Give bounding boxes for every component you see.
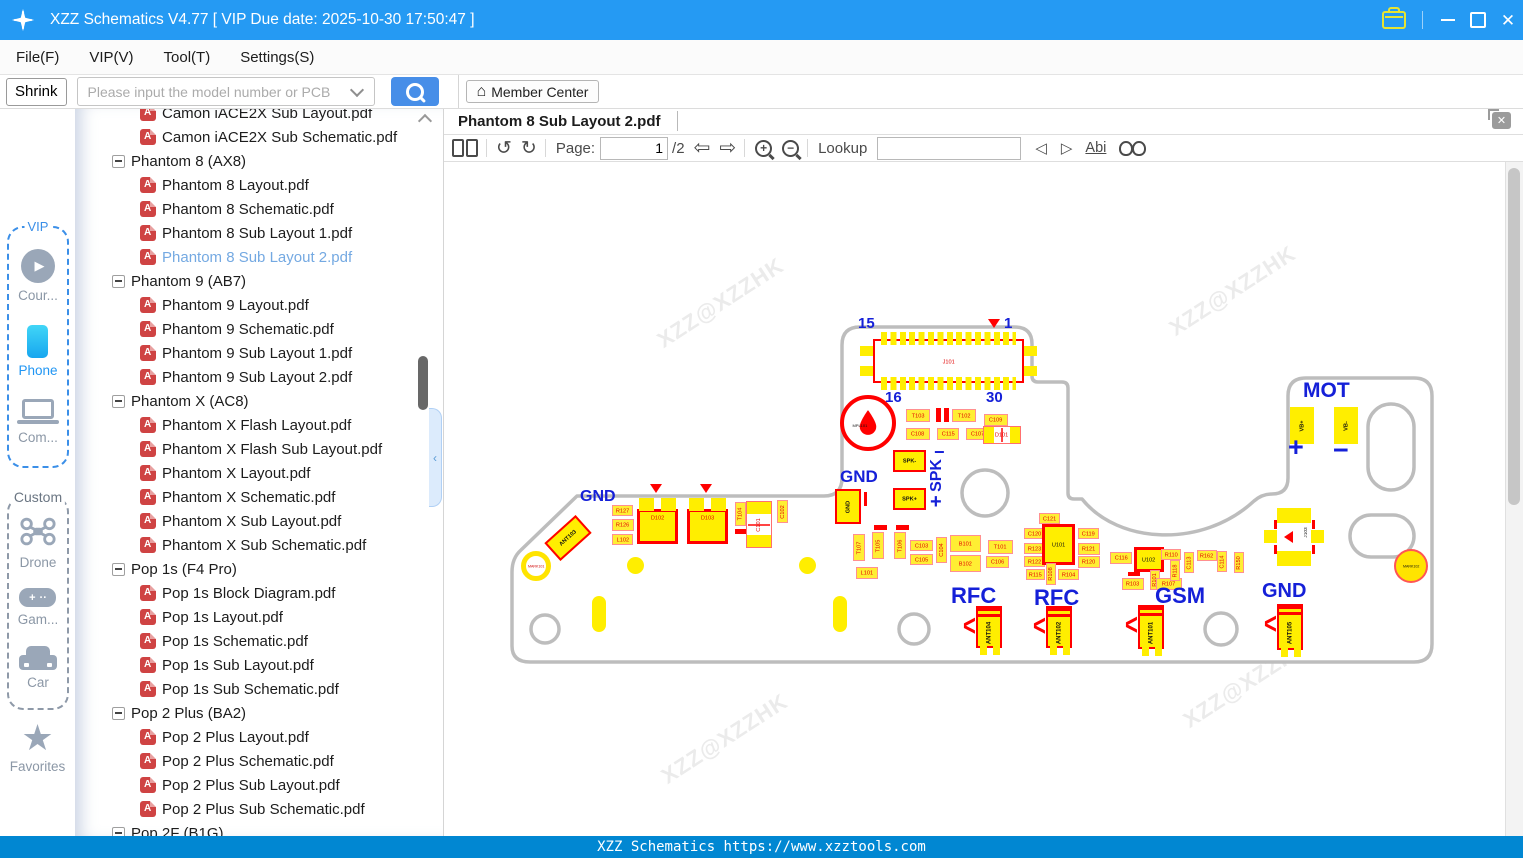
pdf-toolbar: ↺ ↻ Page: /2 ⇦ ⇨ + − Lookup ◁ ▷ Abi <box>444 135 1523 162</box>
pcb-component-ant104: <ANT104 <box>976 606 1002 648</box>
collapse-panel-handle[interactable]: ‹ <box>429 408 442 507</box>
zoom-out-icon[interactable]: − <box>782 140 799 157</box>
tree-item[interactable]: APhantom X Sub Layout.pdf <box>75 510 427 532</box>
tree-item[interactable]: APhantom 9 Layout.pdf <box>75 294 427 316</box>
pdf-icon: A <box>140 657 156 673</box>
tree-item[interactable]: APop 2 Plus Sub Schematic.pdf <box>75 798 427 820</box>
pcb-pill-mark <box>833 596 847 632</box>
tree-scrollbar-thumb[interactable] <box>418 356 428 410</box>
pcb-redbar-mark <box>874 525 887 530</box>
pcb-net-label: RFC <box>1034 587 1079 609</box>
pcb-component-spk-: SPK- <box>893 450 926 472</box>
star-icon: ★ <box>21 720 53 756</box>
lookup-label: Lookup <box>818 140 867 157</box>
pcb-component-b102: B102 <box>950 555 981 572</box>
pcb-component-l102: L102 <box>612 534 633 545</box>
pcb-component-r115: R115 <box>1026 569 1045 580</box>
pcb-component-r150: R150 <box>1234 552 1244 573</box>
diode-triangle-icon <box>1284 531 1293 543</box>
next-page-icon[interactable]: ⇨ <box>719 138 736 158</box>
briefcase-icon[interactable] <box>1382 11 1406 29</box>
tree-item[interactable]: APhantom 9 Sub Layout 1.pdf <box>75 342 427 364</box>
pdf-icon: A <box>140 633 156 649</box>
pcb-component-gnd: GND <box>835 489 861 524</box>
tree-item[interactable]: APop 2 Plus Layout.pdf <box>75 726 427 748</box>
pcb-component-u102: U102 <box>1134 547 1164 572</box>
pdf-icon: A <box>140 537 156 553</box>
pcb-component-c102: C102 <box>777 500 788 523</box>
pcb-component-r118: R118 <box>1170 560 1180 581</box>
pcb-component-t105: T105 <box>872 532 884 559</box>
pcb-component-t107: T107 <box>853 534 865 561</box>
pcb-component-t104: T104 <box>735 502 746 526</box>
tree-item[interactable]: APhantom 9 Schematic.pdf <box>75 318 427 340</box>
pdf-icon: A <box>140 777 156 793</box>
pdf-icon: A <box>140 417 156 433</box>
pcb-component-t101: T101 <box>988 540 1013 554</box>
pcb-component-b101: B101 <box>950 535 981 552</box>
drone-icon <box>19 516 57 550</box>
collapse-icon[interactable] <box>112 563 125 576</box>
pcb-component-r108: R108 <box>1046 563 1056 585</box>
pcb-net-label: 30 <box>986 390 1003 405</box>
pcb-component-ant101: <ANT101 <box>1138 605 1164 649</box>
titlebar-divider <box>1422 11 1423 29</box>
tree-item[interactable]: APhantom X Flash Sub Layout.pdf <box>75 438 427 460</box>
tree-item[interactable]: APop 1s Sub Layout.pdf <box>75 654 427 676</box>
menu-tool[interactable]: Tool(T) <box>150 49 225 66</box>
pcb-component-l101: L101 <box>856 567 878 579</box>
chevron-down-icon[interactable] <box>349 82 363 96</box>
tab-divider <box>677 111 678 131</box>
pdf-icon: A <box>140 321 156 337</box>
tree-item[interactable]: APop 1s Schematic.pdf <box>75 630 427 652</box>
pcb-diode-j103: J103 <box>1264 506 1324 568</box>
spring-contact-icon: < <box>963 611 976 641</box>
page-label: Page: <box>556 140 595 157</box>
pcb-component-r104: R104 <box>1058 569 1079 580</box>
sidebar-item-phone[interactable]: Phone <box>18 325 57 378</box>
laptop-icon <box>22 399 54 419</box>
tree-item[interactable]: APop 1s Sub Schematic.pdf <box>75 678 427 700</box>
pdf-icon: A <box>140 513 156 529</box>
tab-phantom-8-sub-layout-2[interactable]: Phantom 8 Sub Layout 2.pdf <box>458 113 661 130</box>
pdf-icon: A <box>140 345 156 361</box>
car-icon <box>19 655 57 670</box>
search-row: Shrink ⌂ Member Center <box>0 75 1523 109</box>
pcb-component-c114: C114 <box>1217 551 1227 572</box>
collapse-icon[interactable] <box>112 155 125 168</box>
vip-group-label: VIP <box>25 219 52 235</box>
tree-item[interactable]: Pop 2 Plus (BA2) <box>75 702 427 724</box>
pcb-component-r120: R120 <box>1078 556 1100 568</box>
binoculars-icon[interactable] <box>1119 141 1146 156</box>
rotate-right-icon[interactable]: ↻ <box>521 139 537 158</box>
pcb-net-label: 15 <box>858 316 875 331</box>
pdf-icon: A <box>140 108 156 121</box>
pcb-component-c115: C115 <box>937 428 959 440</box>
pdf-icon: A <box>140 369 156 385</box>
menu-vip[interactable]: VIP(V) <box>75 49 147 66</box>
pcb-component-c116: C116 <box>1110 552 1132 564</box>
pcb-fiducial-mark102: MARK102 <box>1394 549 1428 583</box>
close-tabs-icon[interactable]: ✕ <box>1492 112 1511 129</box>
pcb-net-label: GND <box>840 468 878 485</box>
pcb-component-c113: C113 <box>1184 552 1194 573</box>
pdf-icon: A <box>140 441 156 457</box>
pdf-icon: A <box>140 729 156 745</box>
sidebar-item-computer[interactable]: Com... <box>18 399 58 445</box>
tree-item[interactable]: Phantom X (AC8) <box>75 390 427 412</box>
pdf-icon: A <box>140 225 156 241</box>
pcb-tri-mark <box>650 484 662 493</box>
gamepad-icon: +·· <box>19 588 56 607</box>
pcb-redbar-mark <box>1128 572 1140 576</box>
pcb-component-c119: C119 <box>1078 528 1099 539</box>
spring-contact-icon: < <box>1125 610 1138 640</box>
two-page-view-icon[interactable] <box>452 139 478 157</box>
close-button[interactable]: ✕ <box>1493 5 1523 35</box>
window-title: XZZ Schematics V4.77 [ VIP Due date: 202… <box>50 11 475 29</box>
pcb-net-label: MOT <box>1303 380 1350 401</box>
sidebar-item-favorites[interactable]: ★ Favorites <box>0 720 75 774</box>
pcb-component-r162: R162 <box>1197 550 1217 561</box>
pcb-component-t102: T102 <box>952 409 976 422</box>
pcb-component-t106: T106 <box>894 532 906 559</box>
title-bar: XZZ Schematics V4.77 [ VIP Due date: 202… <box>0 0 1523 40</box>
app-window: XZZ@XZZHKXZZ@XZZHKXZZ@XZZHKXZZ@XZZHK T10… <box>0 0 1523 858</box>
tree-item[interactable]: Pop 1s (F4 Pro) <box>75 558 427 580</box>
pcb-redbar-mark <box>944 408 949 422</box>
pdf-icon: A <box>140 681 156 697</box>
sidebar-item-course[interactable]: ▶ Cour... <box>18 249 58 303</box>
pcb-tri-mark <box>700 484 712 493</box>
custom-group-label: Custom <box>11 489 65 506</box>
tree-item[interactable]: APop 2 Plus Schematic.pdf <box>75 750 427 772</box>
pdf-icon: A <box>140 609 156 625</box>
app-logo-icon <box>10 7 36 33</box>
viewer-scrollbar[interactable] <box>1505 162 1523 836</box>
pcb-component-c101: C101 <box>746 501 772 548</box>
tree-item[interactable]: ACamon iACE2X Sub Layout.pdf <box>75 108 427 124</box>
abi-text-tool[interactable]: Abi <box>1085 140 1106 156</box>
member-center-label: Member Center <box>491 84 588 100</box>
zoom-in-icon[interactable]: + <box>755 140 772 157</box>
pdf-icon: A <box>140 177 156 193</box>
pcb-component-d103: D103 <box>687 509 728 544</box>
pcb-component-c103: C103 <box>910 540 933 551</box>
file-tree-panel: ACamon iACE2X Sub Layout.pdfACamon iACE2… <box>75 108 443 836</box>
collapse-icon[interactable] <box>112 707 125 720</box>
status-text: XZZ Schematics https://www.xzztools.com <box>597 839 926 855</box>
pcb-component-r110: R110 <box>1161 549 1181 560</box>
sidebar-group-vip: VIP ▶ Cour... Phone Com... <box>7 226 69 468</box>
spring-contact-icon: < <box>1033 611 1046 641</box>
tree-item[interactable]: APhantom X Schematic.pdf <box>75 486 427 508</box>
pcb-pill-mark <box>592 596 606 632</box>
pcb-net-label: 16 <box>885 390 902 405</box>
page-total: /2 <box>672 140 685 157</box>
previous-result-icon[interactable]: ◁ <box>1035 139 1047 157</box>
pcb-net-label: SPK <box>929 459 945 492</box>
pcb-component-c105: C105 <box>910 554 933 565</box>
pdf-icon: A <box>140 129 156 145</box>
viewer-scrollbar-thumb[interactable] <box>1508 168 1520 505</box>
tree-item[interactable]: Pop 2F (B1G) <box>75 822 427 836</box>
pcb-net-label: GND <box>580 489 616 505</box>
pcb-net-label: GSM <box>1155 585 1205 607</box>
maximize-button[interactable] <box>1463 5 1493 35</box>
sidebar-item-car[interactable]: Car <box>19 645 57 690</box>
pcb-component-c106: C106 <box>986 556 1009 568</box>
pdf-icon: A <box>140 489 156 505</box>
status-bar: XZZ Schematics https://www.xzztools.com <box>0 836 1523 858</box>
pcb-component-c109: C109 <box>984 414 1008 426</box>
pdf-icon: A <box>140 465 156 481</box>
tree-item[interactable]: APhantom 8 Layout.pdf <box>75 174 427 196</box>
tree-item[interactable]: APhantom 9 Sub Layout 2.pdf <box>75 366 427 388</box>
search-button[interactable] <box>391 77 439 106</box>
model-search-box[interactable] <box>77 77 375 106</box>
tree-item[interactable]: APop 1s Block Diagram.pdf <box>75 582 427 604</box>
home-icon: ⌂ <box>477 84 487 100</box>
search-icon <box>406 83 424 101</box>
pdf-icon: A <box>140 297 156 313</box>
pcb-component-r103: R103 <box>1122 578 1144 590</box>
pcb-component-c121: C121 <box>1039 513 1060 524</box>
pcb-component-r126: R126 <box>612 519 634 531</box>
pcb-redbar-mark <box>936 408 941 422</box>
pcb-component-c108: C108 <box>906 428 930 440</box>
tree-item[interactable]: APop 2 Plus Sub Layout.pdf <box>75 774 427 796</box>
page-number-input[interactable] <box>600 137 668 160</box>
tab-bar: Phantom 8 Sub Layout 2.pdf ✕ <box>444 108 1523 135</box>
pcb-net-label: + <box>1288 434 1304 461</box>
pcb-net-label: 1 <box>1004 316 1012 331</box>
pcb-redbar-mark <box>864 492 867 506</box>
spring-contact-icon: < <box>1264 609 1277 639</box>
pcb-component-spk+: SPK+ <box>893 488 926 510</box>
pcb-component-r127: R127 <box>612 505 633 516</box>
pcb-net-label: − <box>1333 437 1349 464</box>
pcb-component-ant102: <ANT102 <box>1046 606 1072 648</box>
tree-item[interactable]: APhantom 8 Schematic.pdf <box>75 198 427 220</box>
menu-file[interactable]: File(F) <box>2 49 73 66</box>
pcb-component-d102: D102 <box>637 509 678 544</box>
phone-icon <box>27 325 48 358</box>
tree-item[interactable]: APhantom 8 Sub Layout 2.pdf <box>75 246 427 268</box>
collapse-icon[interactable] <box>112 275 125 288</box>
pcb-tri-mark <box>988 319 1000 328</box>
pcb-component-ant105: <ANT105 <box>1277 604 1303 650</box>
pcb-net-label: GND <box>1262 581 1306 601</box>
previous-page-icon[interactable]: ⇦ <box>694 138 711 158</box>
pcb-component-u101: U101 <box>1042 524 1075 565</box>
collapse-icon[interactable] <box>112 395 125 408</box>
next-result-icon[interactable]: ▷ <box>1061 139 1073 157</box>
menu-settings[interactable]: Settings(S) <box>226 49 328 66</box>
pcb-component-t103: T103 <box>906 409 930 422</box>
pcb-redbar-mark <box>735 529 746 534</box>
rotate-left-icon[interactable]: ↺ <box>496 139 512 158</box>
tree-item[interactable]: Phantom 8 (AX8) <box>75 150 427 172</box>
member-center-button[interactable]: ⌂ Member Center <box>466 80 600 103</box>
pdf-icon: A <box>140 249 156 265</box>
panel-divider <box>443 75 444 836</box>
pcb-fiducial-mark101: MARK101 <box>521 551 551 581</box>
tree-item[interactable]: APhantom X Sub Schematic.pdf <box>75 534 427 556</box>
shrink-button[interactable]: Shrink <box>6 78 67 106</box>
pdf-icon: A <box>140 201 156 217</box>
pcb-component-d101: D101 <box>983 426 1021 444</box>
tree-item[interactable]: APop 1s Layout.pdf <box>75 606 427 628</box>
lookup-input[interactable] <box>877 137 1021 160</box>
tree-item[interactable]: APhantom 8 Sub Layout 1.pdf <box>75 222 427 244</box>
sidebar-group-custom: Custom Drone +·· Gam... <box>7 496 69 710</box>
minimize-button[interactable] <box>1433 5 1463 35</box>
play-icon: ▶ <box>21 249 55 283</box>
tree-item[interactable]: APhantom X Layout.pdf <box>75 462 427 484</box>
pcb-net-label: RFC <box>951 585 996 607</box>
pcb-component-r121: R121 <box>1078 543 1100 555</box>
model-search-input[interactable] <box>86 83 346 101</box>
pdf-icon: A <box>140 801 156 817</box>
collapse-icon[interactable] <box>112 827 125 837</box>
tree-item[interactable]: ACamon iACE2X Sub Schematic.pdf <box>75 126 427 148</box>
sidebar-item-drone[interactable]: Drone <box>19 516 57 570</box>
sidebar: VIP ▶ Cour... Phone Com... Custom <box>0 108 75 836</box>
tree-item[interactable]: Phantom 9 (AB7) <box>75 270 427 292</box>
pcb-connector-j101: J101 <box>873 339 1024 383</box>
pdf-icon: A <box>140 753 156 769</box>
member-center-section: ⌂ Member Center <box>458 75 600 108</box>
pcb-via-mark <box>799 557 816 574</box>
sidebar-item-game[interactable]: +·· Gam... <box>18 588 59 627</box>
pdf-icon: A <box>140 585 156 601</box>
pcb-via-mark <box>627 557 644 574</box>
tree-item[interactable]: APhantom X Flash Layout.pdf <box>75 414 427 436</box>
menu-bar: File(F) VIP(V) Tool(T) Settings(S) <box>0 40 1523 75</box>
pcb-component-c104: C104 <box>936 537 947 563</box>
pcb-redbar-mark <box>896 525 909 530</box>
pcb-net-label: + <box>930 492 942 512</box>
